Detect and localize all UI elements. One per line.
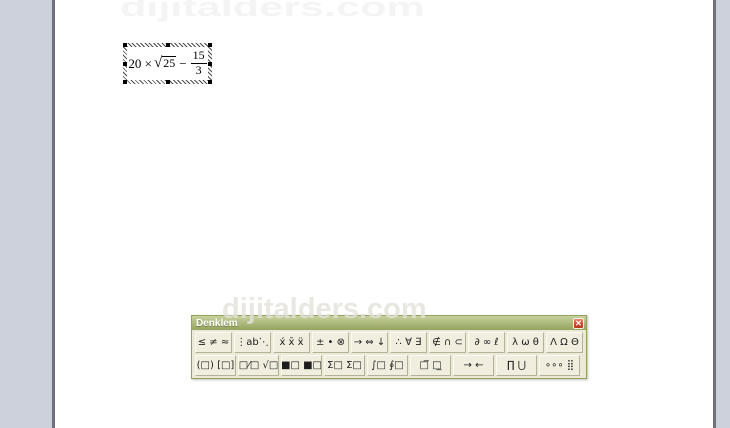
palette-matrix-templates[interactable]: ∘∘∘ ⣿ [539, 355, 580, 376]
equation-operator: − [178, 56, 187, 72]
equation-fraction: 15 3 [191, 49, 207, 78]
palette-underbar-overbar-templates[interactable]: □̅ □̲ [410, 355, 451, 376]
selection-handle-middle-left[interactable] [123, 62, 127, 66]
palette-set-theory-symbols[interactable]: ∉ ∩ ⊂ [429, 332, 466, 353]
close-icon[interactable]: ✕ [573, 318, 584, 329]
equation-radicand: 25 [162, 56, 176, 71]
palette-fraction-radical-templates[interactable]: □⁄□ √□ [238, 355, 279, 376]
toolbar-title: Denklem [196, 318, 238, 329]
palette-labeled-arrow-templates[interactable]: → ← [453, 355, 494, 376]
palette-integral-templates[interactable]: ∫□ ∮□ [367, 355, 408, 376]
palette-fence-templates[interactable]: (□) [□] [195, 355, 236, 376]
palette-product-set-templates[interactable]: ∏ ⋃ [496, 355, 537, 376]
toolbar-button-area: ≤ ≠ ≈⋮ab⋱x́ x̄ ẍ± • ⊗→ ⇔ ↓∴ ∀ ∃∉ ∩ ⊂∂ ∞ … [192, 330, 586, 378]
application-window: { "watermark": { "text": "dijitalders.co… [0, 0, 730, 428]
selection-handle-bottom-left[interactable] [123, 80, 127, 84]
radical-sign-icon: √ [154, 56, 162, 71]
palette-greek-lowercase[interactable]: λ ω θ [507, 332, 544, 353]
equation-object[interactable]: 20 × √ 25 − 15 3 [123, 43, 212, 84]
selection-handle-middle-right[interactable] [208, 62, 212, 66]
selection-handle-bottom-middle[interactable] [166, 80, 170, 84]
toolbar-titlebar[interactable]: Denklem ✕ [192, 316, 586, 330]
equation-radical: √ 25 [154, 56, 176, 71]
palette-misc-symbols[interactable]: ∂ ∞ ℓ [468, 332, 505, 353]
palette-logical-symbols[interactable]: ∴ ∀ ∃ [390, 332, 427, 353]
selection-handle-top-left[interactable] [123, 43, 127, 47]
palette-relational-symbols[interactable]: ≤ ≠ ≈ [195, 332, 232, 353]
fraction-denominator: 3 [196, 64, 202, 78]
selection-handle-top-middle[interactable] [166, 43, 170, 47]
palette-arrow-symbols[interactable]: → ⇔ ↓ [351, 332, 388, 353]
selection-handle-top-right[interactable] [208, 43, 212, 47]
palette-operator-symbols[interactable]: ± • ⊗ [312, 332, 349, 353]
palette-greek-uppercase[interactable]: Λ Ω Θ [546, 332, 583, 353]
equation-toolbar-window: Denklem ✕ ≤ ≠ ≈⋮ab⋱x́ x̄ ẍ± • ⊗→ ⇔ ↓∴ ∀ … [191, 315, 587, 379]
palette-summation-templates[interactable]: Σ□ Σ□ [324, 355, 365, 376]
palette-subscript-superscript-templates[interactable]: ■□ ■□ [281, 355, 322, 376]
selection-handle-bottom-right[interactable] [208, 80, 212, 84]
toolbar-template-row: (□) [□]□⁄□ √□■□ ■□Σ□ Σ□∫□ ∮□□̅ □̲→ ←∏ ⋃∘… [194, 355, 584, 376]
toolbar-symbol-row: ≤ ≠ ≈⋮ab⋱x́ x̄ ẍ± • ⊗→ ⇔ ↓∴ ∀ ∃∉ ∩ ⊂∂ ∞ … [194, 332, 584, 353]
fraction-numerator: 15 [191, 49, 207, 64]
palette-embellishments[interactable]: x́ x̄ ẍ [273, 332, 310, 353]
equation-lhs: 20 × [128, 56, 152, 72]
palette-spaces-ellipses[interactable]: ⋮ab⋱ [234, 332, 271, 353]
equation-content: 20 × √ 25 − 15 3 [127, 47, 208, 80]
